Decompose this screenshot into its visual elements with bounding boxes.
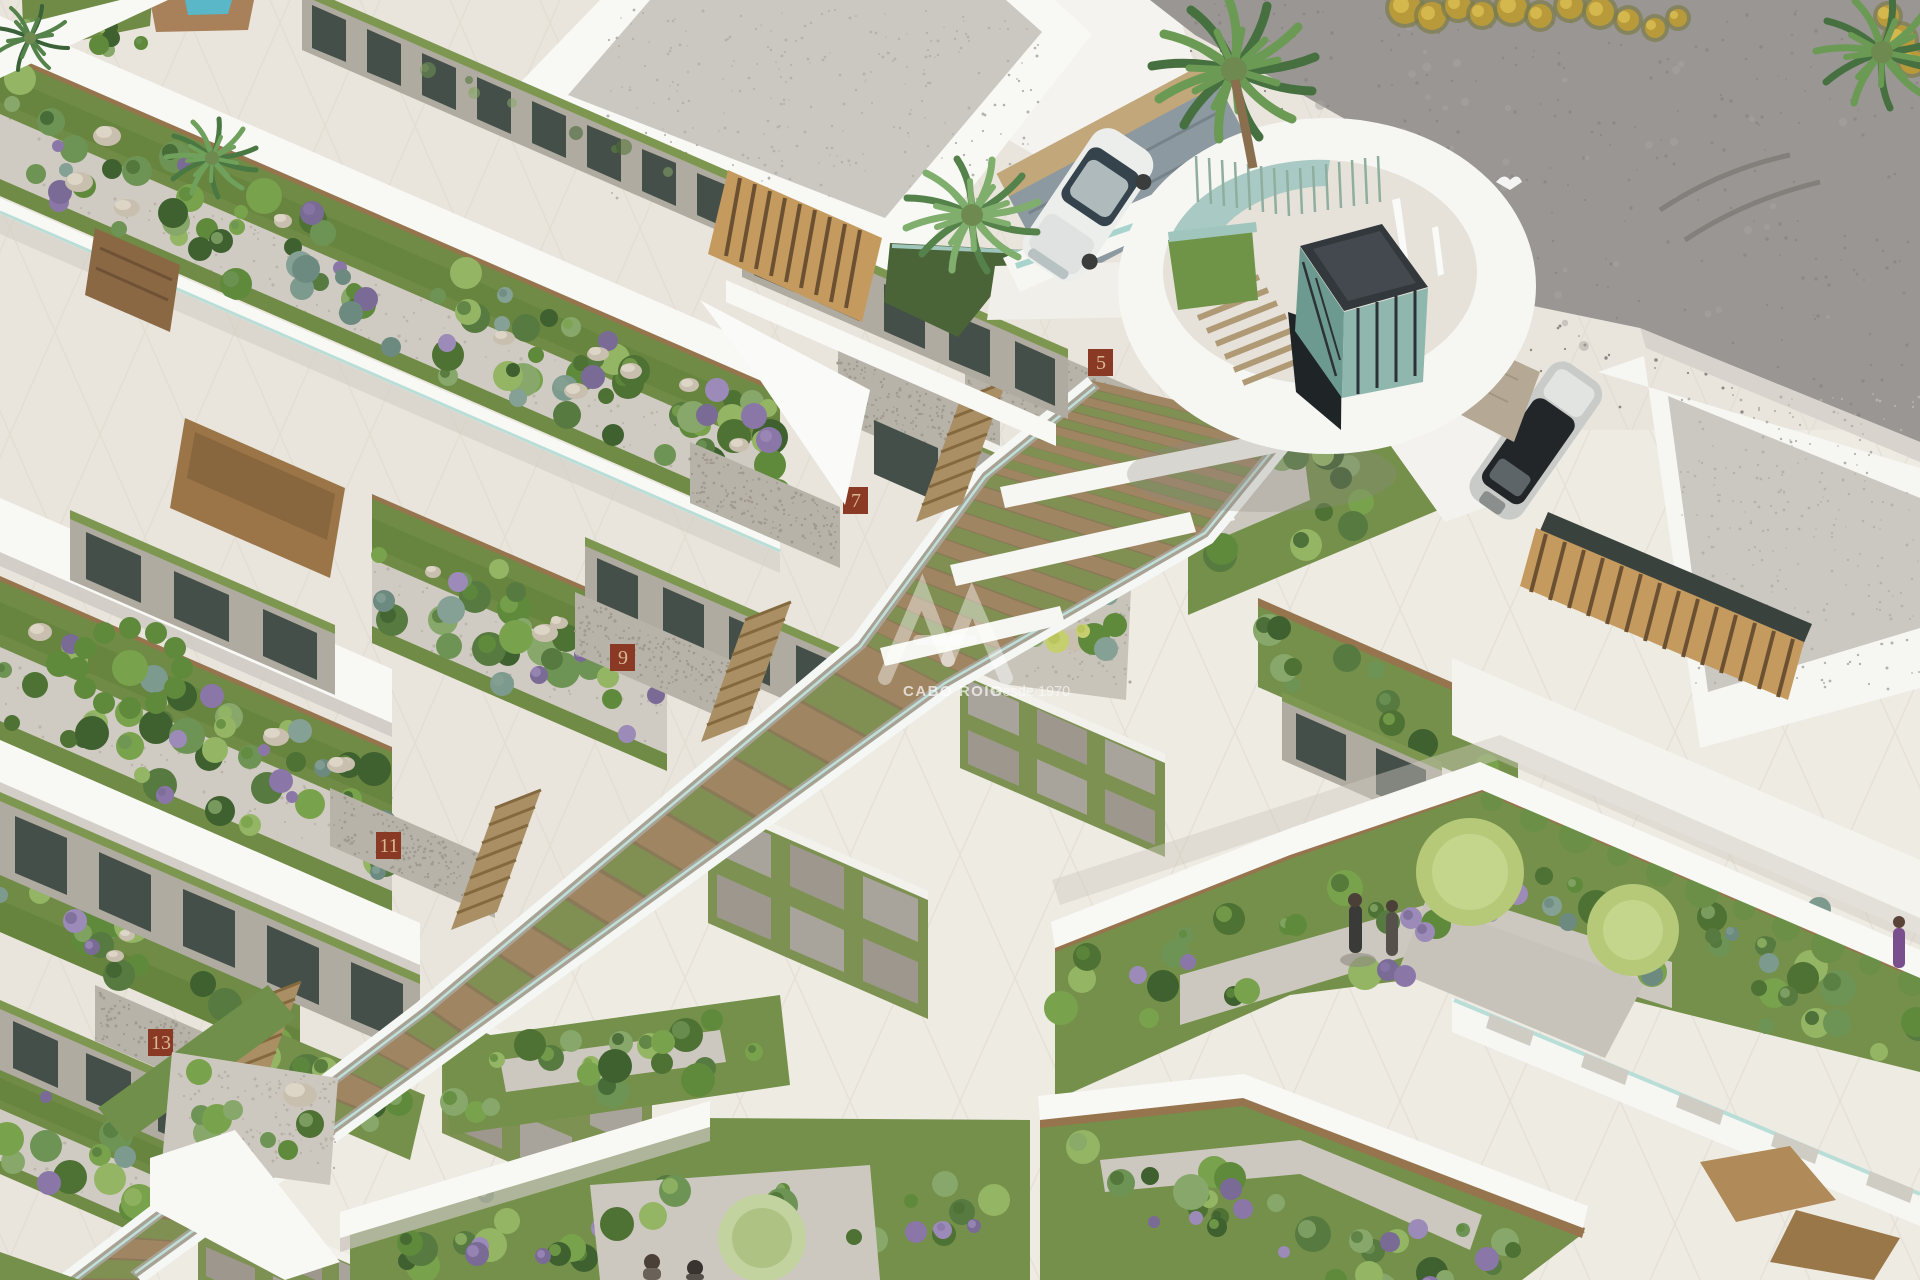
svg-text:5: 5: [1096, 352, 1106, 374]
svg-text:CABO ROIG: CABO ROIG: [903, 683, 1003, 700]
svg-text:Desde 1970: Desde 1970: [992, 684, 1070, 700]
svg-text:13: 13: [151, 1032, 171, 1054]
svg-text:11: 11: [379, 835, 398, 857]
svg-text:9: 9: [618, 647, 628, 669]
svg-text:7: 7: [851, 490, 861, 512]
